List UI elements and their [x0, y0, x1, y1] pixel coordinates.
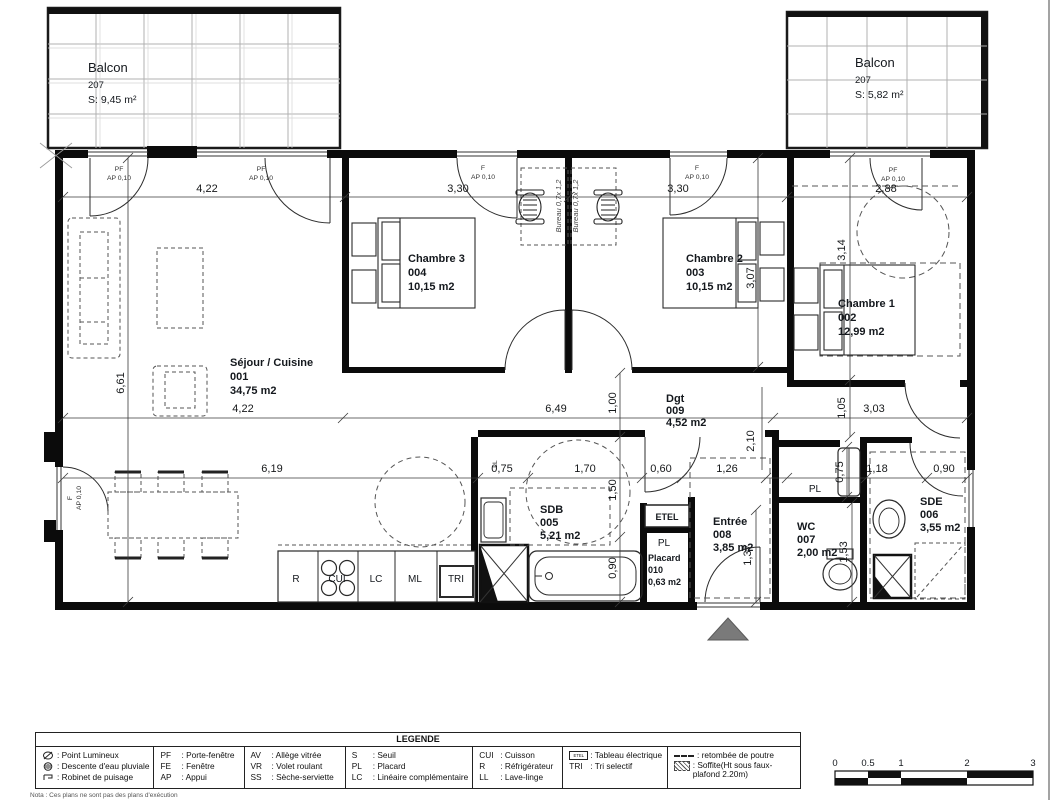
- dim-153: 1,53: [838, 541, 850, 562]
- legend-abbr: SS: [251, 772, 272, 783]
- sdb-number: 005: [540, 517, 558, 529]
- duct-kitchen: [480, 545, 528, 602]
- tri-label: TRI: [448, 574, 464, 585]
- dgt-name: Dgt: [666, 393, 685, 405]
- placard-number: 010: [648, 565, 663, 575]
- floor-plan-sheet: Balcon 207 S: 9,45 m² Balcon 207 S: 5,82…: [0, 0, 1054, 800]
- ap-tag-3: AP 0,10: [471, 174, 495, 181]
- floor-plan-drawing: Balcon 207 S: 9,45 m² Balcon 207 S: 5,82…: [0, 0, 1054, 800]
- legend-item-label: : Seuil: [373, 750, 396, 761]
- sde-number: 006: [920, 509, 938, 521]
- legend-item-label: : Point Lumineux: [57, 750, 119, 761]
- scale-05: 0.5: [861, 758, 874, 769]
- scale-0: 0: [832, 758, 837, 769]
- dim-075v: 0,75: [834, 461, 846, 482]
- chambre2-area: 10,15 m2: [686, 281, 732, 293]
- bureau-label-1: Bureau 0,7x 1,2: [554, 179, 563, 233]
- legend-item-label: : Lave-linge: [500, 772, 543, 783]
- sejour-area: 34,75 m2: [230, 385, 276, 397]
- legend-col-av: AV: Allège vitrée VR: Volet roulant SS: …: [245, 747, 346, 789]
- dim-top-422: 4,22: [196, 183, 217, 195]
- chambre1-name: Chambre 1: [838, 298, 895, 310]
- ap-tag-left: AP 0,10: [76, 486, 83, 510]
- scale-bar: 0 0.5 1 2 3: [832, 758, 1035, 785]
- legend-col-pf: PF: Porte-fenêtre FE: Fenêtre AP: Appui: [154, 747, 244, 789]
- lc-label: LC: [370, 574, 383, 585]
- legend-title: LEGENDE: [36, 733, 800, 747]
- legend-item-label: : Fenêtre: [181, 761, 214, 772]
- legend-item-label: : Allège vitrée: [272, 750, 322, 761]
- sdb-name: SDB: [540, 504, 563, 516]
- legend-abbr: TRI: [569, 761, 590, 772]
- pl-label-vestibule: PL: [809, 484, 822, 495]
- sdb-dashed: [375, 440, 630, 547]
- legend-abbr: PF: [160, 750, 181, 761]
- pf-tag-2: PF: [257, 166, 266, 173]
- chambre3-name: Chambre 3: [408, 253, 465, 265]
- dining-table: [108, 492, 238, 538]
- pf-tag-1: PF: [115, 166, 124, 173]
- cooktop-label: CUI: [328, 574, 345, 585]
- sofa: [68, 218, 120, 358]
- f-tag-2: F: [695, 165, 699, 172]
- point-lumineux-icon: [42, 751, 57, 760]
- legend-col-poutre: : retombée de poutre : Soffite(Ht sous f…: [668, 747, 800, 789]
- etel-label: ETEL: [655, 512, 679, 522]
- legend-abbr: PL: [352, 761, 373, 772]
- ap-tag-5: AP 0,10: [881, 176, 905, 183]
- windows-glazing: [57, 152, 973, 607]
- placard-name: Placard: [648, 553, 681, 563]
- legend-col-symbols: : Point Lumineux : Descente d'eau pluvia…: [36, 747, 154, 789]
- legend-abbr: LC: [352, 772, 373, 783]
- balcony-right-number: 207: [855, 75, 871, 86]
- pl-label-placard: PL: [658, 538, 671, 549]
- dim-low-060: 0,60: [650, 463, 671, 475]
- dim-mid-303: 3,03: [863, 403, 884, 415]
- dim-150: 1,50: [607, 479, 619, 500]
- duct-sde: [874, 555, 911, 598]
- legend-item-label: : Cuisson: [500, 750, 535, 761]
- chambre3-area: 10,15 m2: [408, 281, 454, 293]
- retombee-poutre-icon: [674, 755, 694, 757]
- legend-abbr: R: [479, 761, 500, 772]
- kitchen: R CUI LC ML TRI: [278, 545, 475, 602]
- legend-item-label: : Linéaire complémentaire: [373, 772, 468, 783]
- tableau-electrique-icon: ETEL: [569, 751, 588, 760]
- f-tag-left: F: [67, 496, 74, 500]
- chambre1-furniture: [794, 265, 915, 355]
- sejour-name: Séjour / Cuisine: [230, 357, 313, 369]
- balcony-left: Balcon 207 S: 9,45 m²: [48, 8, 340, 148]
- soffite-icon: [674, 761, 690, 771]
- coffee-table: [157, 248, 203, 328]
- wc-area: 2,00 m2: [797, 547, 837, 559]
- dim-low-118: 1,18: [866, 463, 887, 475]
- legend-abbr: S: [352, 750, 373, 761]
- dim-top-288: 2,88: [875, 183, 896, 195]
- entree-number: 008: [713, 529, 731, 541]
- balcony-left-number: 207: [88, 80, 104, 91]
- legend-item-label: : Tri selectif: [590, 761, 632, 772]
- legend-item-label: : Tableau électrique: [590, 750, 662, 761]
- f-tag-1: F: [481, 165, 485, 172]
- interior-walls: [342, 158, 967, 602]
- balcony-right: Balcon 207 S: 5,82 m²: [787, 12, 988, 148]
- sdb-area: 5,21 m2: [540, 530, 580, 542]
- entree-name: Entrée: [713, 516, 747, 528]
- dim-090v: 0,90: [607, 557, 619, 578]
- balcony-left-area: S: 9,45 m²: [88, 94, 137, 106]
- dim-mid-649: 6,49: [545, 403, 566, 415]
- sde-name: SDE: [920, 496, 943, 508]
- descente-eau-icon: [42, 762, 57, 771]
- bureau-label-2: Bureau 0,7x 1,2: [571, 179, 580, 233]
- scale-1: 1: [898, 758, 903, 769]
- chambre3-number: 004: [408, 267, 427, 279]
- legend-col-s: S: Seuil PL: Placard LC: Linéaire complé…: [346, 747, 473, 789]
- fridge-label: R: [292, 574, 299, 585]
- plan-note: Nota : Ces plans ne sont pas des plans d…: [30, 792, 178, 799]
- chambre1-area: 12,99 m2: [838, 326, 884, 338]
- legend-col-etel: ETEL: Tableau électrique TRI: Tri select…: [563, 747, 668, 789]
- chambre2-name: Chambre 2: [686, 253, 743, 265]
- dim-661: 6,61: [115, 372, 127, 393]
- dim-top-330b: 3,30: [667, 183, 688, 195]
- legend-abbr: FE: [160, 761, 181, 772]
- legend: LEGENDE : Point Lumineux : Descente d'ea…: [35, 732, 801, 789]
- dim-low-170: 1,70: [574, 463, 595, 475]
- window-tags: PF AP 0,10 PF AP 0,10 F AP 0,10 F AP 0,1…: [67, 165, 905, 510]
- dim-low-619: 6,19: [261, 463, 282, 475]
- chambre2-number: 003: [686, 267, 704, 279]
- entrance-arrow: [708, 618, 748, 640]
- dim-low-090: 0,90: [933, 463, 954, 475]
- dim-105: 1,05: [836, 397, 848, 418]
- legend-item-label: : Sèche-serviette: [272, 772, 334, 783]
- dim-mid-422: 4,22: [232, 403, 253, 415]
- sejour-furniture: [68, 218, 238, 558]
- legend-item-label: : Placard: [373, 761, 406, 772]
- dim-top-330a: 3,30: [447, 183, 468, 195]
- dim-low-126: 1,26: [716, 463, 737, 475]
- legend-item-label: : Porte-fenêtre: [181, 750, 234, 761]
- wc-number: 007: [797, 534, 815, 546]
- ap-tag-4: AP 0,10: [685, 174, 709, 181]
- etel-placard: ETEL: [645, 505, 689, 527]
- dim-137: 1,37: [742, 544, 754, 565]
- legend-abbr: CUI: [479, 750, 500, 761]
- dgt-area: 4,52 m2: [666, 417, 706, 429]
- legend-col-cui: CUI: Cuisson R: Réfrigérateur LL: Lave-l…: [473, 747, 563, 789]
- dim-100: 1,00: [607, 392, 619, 413]
- legend-item-label: : Volet roulant: [272, 761, 323, 772]
- sde-washbasin: [873, 500, 905, 538]
- sejour-number: 001: [230, 371, 248, 383]
- sde-area: 3,55 m2: [920, 522, 960, 534]
- sde-shower: [915, 543, 965, 599]
- dining-chair-backs: [115, 472, 228, 558]
- legend-item-label: : Robinet de puisage: [57, 772, 133, 783]
- dim-314: 3,14: [836, 239, 848, 260]
- chambre1-number: 002: [838, 312, 856, 324]
- ap-tag-2: AP 0,10: [249, 175, 273, 182]
- wc-name: WC: [797, 521, 815, 533]
- legend-abbr: AV: [251, 750, 272, 761]
- scale-3: 3: [1030, 758, 1035, 769]
- legend-item-label: : Descente d'eau pluviale: [57, 761, 149, 772]
- washbasin-sdb: [481, 498, 506, 542]
- dim-210: 2,10: [745, 430, 757, 451]
- scale-2: 2: [964, 758, 969, 769]
- dgt-number: 009: [666, 405, 684, 417]
- legend-item-label: : Appui: [181, 772, 206, 783]
- washer-ml-label: ML: [408, 574, 422, 585]
- legend-item-label: : Réfrigérateur: [500, 761, 553, 772]
- placard-area: 0,63 m2: [648, 577, 681, 587]
- dim-low-075: 0,75: [491, 463, 512, 475]
- legend-abbr: AP: [160, 772, 181, 783]
- balcony-right-area: S: 5,82 m²: [855, 89, 904, 101]
- pf-tag-3: PF: [889, 167, 898, 174]
- robinet-icon: [42, 773, 57, 782]
- legend-item-label: : Soffite(Ht sous faux-plafond 2.20m): [693, 761, 796, 779]
- legend-abbr: VR: [251, 761, 272, 772]
- legend-abbr: LL: [479, 772, 500, 783]
- dim-307: 3,07: [745, 267, 757, 288]
- balcony-right-title: Balcon: [855, 55, 895, 70]
- balcony-left-title: Balcon: [88, 60, 128, 75]
